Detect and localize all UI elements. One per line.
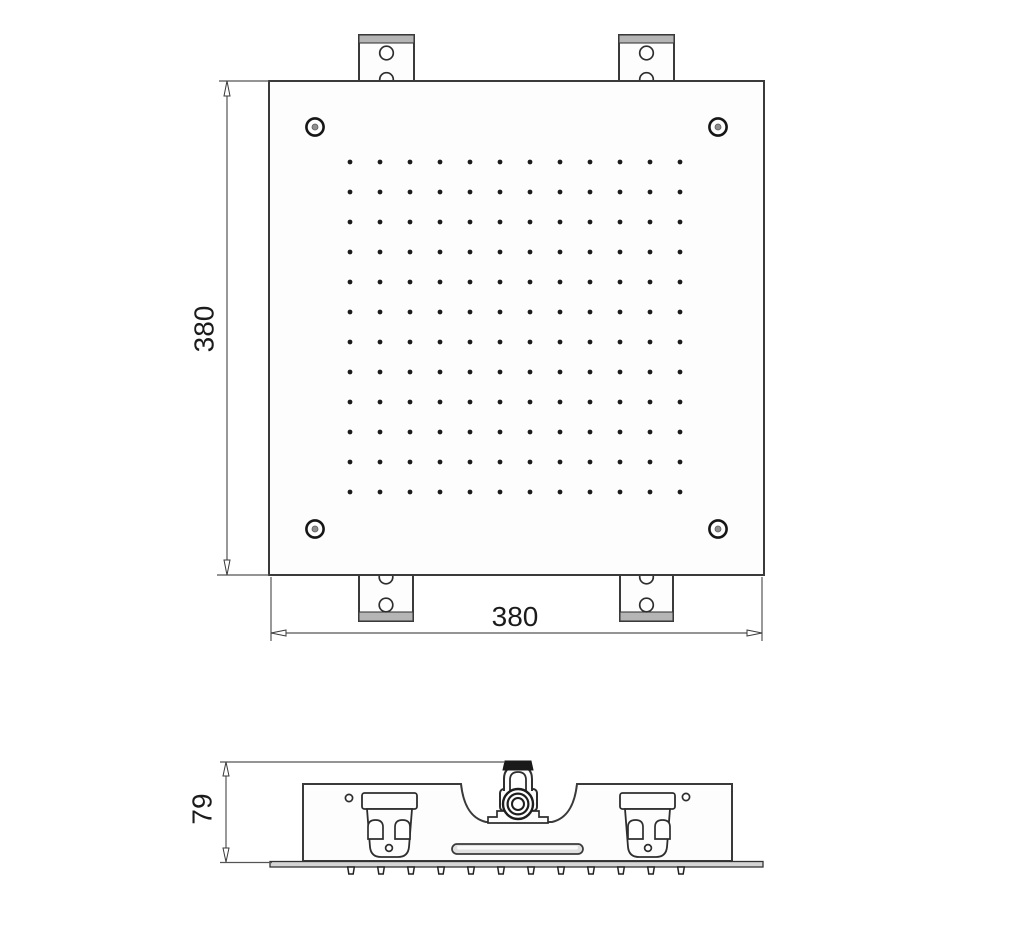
dimension-label-depth: 79 [186, 793, 217, 824]
nozzle-dot [438, 370, 443, 375]
nozzle-dot [498, 310, 503, 315]
nozzle-dot [438, 160, 443, 165]
bracket-gray-band [619, 35, 674, 43]
nozzle-dot [468, 280, 473, 285]
arrowhead-up [223, 762, 229, 776]
nozzle-dot [648, 190, 653, 195]
nozzle-dot [528, 160, 533, 165]
nozzle-dot [588, 310, 593, 315]
nozzle-dot [618, 400, 623, 405]
nozzle-dot [588, 370, 593, 375]
nozzle-dot [558, 400, 563, 405]
nozzle-dot [468, 250, 473, 255]
nozzle-dot [468, 430, 473, 435]
nozzle-dot [528, 430, 533, 435]
nozzle-dot [588, 250, 593, 255]
nozzle-dot [408, 430, 413, 435]
waterfall-slot [452, 844, 583, 854]
nozzle-dot [528, 310, 533, 315]
screw-hole [682, 793, 689, 800]
nozzle-dot [438, 280, 443, 285]
bracket-hole [640, 598, 654, 612]
bracket-hole [640, 46, 654, 60]
nozzle-dot [468, 400, 473, 405]
nozzle-dot [378, 400, 383, 405]
nozzle-dot [558, 430, 563, 435]
water-inlet-connector [488, 761, 548, 823]
nozzle-dot [528, 490, 533, 495]
bracket-gray-band [359, 35, 414, 43]
nozzle-dot [618, 190, 623, 195]
nozzle-dot [468, 190, 473, 195]
nozzle-dot [558, 190, 563, 195]
arrowhead-right [747, 630, 762, 636]
nozzle-dot [678, 490, 683, 495]
nozzle-dot [648, 460, 653, 465]
top-view [269, 35, 764, 621]
nozzle-dot [438, 220, 443, 225]
nozzle-dot [588, 430, 593, 435]
arrowhead-left [271, 630, 286, 636]
nozzle-dot [438, 310, 443, 315]
mounting-bracket-top-right [619, 35, 674, 86]
nozzle-dot [618, 220, 623, 225]
keyhole-slot [368, 820, 383, 839]
nozzle-dot [588, 190, 593, 195]
nozzle-dot [408, 220, 413, 225]
inlet-dark-cap [503, 761, 533, 770]
nozzle-dot [528, 400, 533, 405]
nozzle-dot [618, 340, 623, 345]
nozzle-dot [348, 340, 353, 345]
nozzle-dot [678, 220, 683, 225]
nozzle-dot [678, 400, 683, 405]
nozzle-dot [528, 370, 533, 375]
side-bracket-right [620, 793, 675, 857]
bracket-gray-band [359, 612, 413, 621]
nozzle-dot [588, 160, 593, 165]
nozzle-dot [468, 490, 473, 495]
nozzle-dot [648, 490, 653, 495]
nozzle-dot [408, 340, 413, 345]
nozzle-dot [378, 280, 383, 285]
bracket-gray-band [620, 612, 673, 621]
nozzle-dot [618, 160, 623, 165]
screw-hole [345, 794, 352, 801]
nozzle-dot [648, 220, 653, 225]
nozzle-tick [528, 867, 535, 874]
nozzle-dot [408, 160, 413, 165]
nozzle-dot [498, 370, 503, 375]
nozzle-dot [648, 370, 653, 375]
nozzle-dot [588, 400, 593, 405]
nozzle-dot [558, 220, 563, 225]
nozzle-dot [588, 220, 593, 225]
bracket-hole [379, 598, 393, 612]
nozzle-dot [348, 280, 353, 285]
nozzle-dot [558, 310, 563, 315]
nozzle-tick [498, 867, 505, 874]
nozzle-dot [558, 280, 563, 285]
dimension-width-380: 380 [271, 577, 762, 641]
nozzle-tick [378, 867, 385, 874]
nozzle-dot [528, 460, 533, 465]
nozzle-dot [408, 400, 413, 405]
nozzle-tick [678, 867, 685, 874]
nozzle-dot [468, 310, 473, 315]
nozzle-dot [348, 250, 353, 255]
nozzle-dot [438, 490, 443, 495]
nozzle-dot [378, 220, 383, 225]
nozzle-dot [558, 490, 563, 495]
side-bracket-left [362, 793, 417, 857]
dimension-height-380: 380 [188, 81, 269, 575]
nozzle-dot [468, 220, 473, 225]
nozzle-dot [588, 490, 593, 495]
dimension-label-width: 380 [492, 601, 539, 632]
nozzle-dot [678, 160, 683, 165]
arrowhead-down [224, 560, 230, 575]
nozzle-dot [348, 460, 353, 465]
arrowhead-down [223, 848, 229, 862]
nozzle-dot [648, 310, 653, 315]
nozzle-dot [588, 280, 593, 285]
nozzle-dot [498, 340, 503, 345]
nozzle-tick [468, 867, 475, 874]
nozzle-dot [558, 340, 563, 345]
nozzle-dot [438, 460, 443, 465]
nozzle-tick [408, 867, 415, 874]
nozzle-dot [588, 460, 593, 465]
nozzle-dot [618, 430, 623, 435]
nozzle-dot [348, 400, 353, 405]
drawing-canvas: 380 380 [0, 0, 1024, 936]
nozzle-dot [498, 160, 503, 165]
bracket-screw-hole [386, 845, 393, 852]
nozzle-dot [348, 430, 353, 435]
nozzle-tick [648, 867, 655, 874]
nozzle-dot [348, 370, 353, 375]
nozzle-dot [528, 280, 533, 285]
nozzle-dot [648, 340, 653, 345]
nozzle-dot [678, 310, 683, 315]
nozzle-dot [348, 190, 353, 195]
nozzle-dot [438, 430, 443, 435]
nozzle-dot [348, 220, 353, 225]
nozzle-dot [618, 280, 623, 285]
side-view [270, 761, 763, 874]
nozzle-dot [378, 310, 383, 315]
nozzle-dot [558, 250, 563, 255]
nozzle-dot [378, 460, 383, 465]
nozzle-dot [618, 310, 623, 315]
dimension-label-height: 380 [188, 306, 219, 353]
nozzle-dot [498, 490, 503, 495]
bracket-hole [380, 46, 394, 60]
nozzle-dot [378, 490, 383, 495]
nozzle-dot [348, 160, 353, 165]
showerhead-plate [269, 81, 764, 575]
mounting-bracket-bottom-left [359, 570, 413, 621]
corner-screw [709, 118, 726, 135]
nozzle-dot [648, 160, 653, 165]
nozzle-dot [678, 250, 683, 255]
nozzle-dot [648, 400, 653, 405]
nozzle-dot [378, 250, 383, 255]
nozzle-dot [528, 340, 533, 345]
faceplate-strip [270, 862, 763, 868]
nozzle-dot [618, 370, 623, 375]
nozzle-dot [588, 340, 593, 345]
nozzle-dot [468, 370, 473, 375]
nozzle-dot [558, 160, 563, 165]
keyhole-slot [395, 820, 410, 839]
nozzle-dot [348, 490, 353, 495]
nozzle-dot [498, 430, 503, 435]
mounting-bracket-bottom-right [620, 570, 673, 621]
nozzle-dot [498, 460, 503, 465]
nozzle-dot [678, 190, 683, 195]
nozzle-dot [438, 250, 443, 255]
nozzle-dot [498, 220, 503, 225]
nozzle-dot [648, 430, 653, 435]
nozzle-dot [678, 340, 683, 345]
nozzle-dot [408, 490, 413, 495]
nozzle-dot [408, 250, 413, 255]
nozzle-dot [438, 340, 443, 345]
bracket-cap [362, 793, 417, 809]
nozzle-dot [528, 250, 533, 255]
nozzle-dot [678, 460, 683, 465]
nozzle-dot [408, 370, 413, 375]
nozzle-dot [558, 370, 563, 375]
nozzle-dot [378, 190, 383, 195]
nozzle-dot [678, 280, 683, 285]
nozzle-dot [498, 400, 503, 405]
nozzle-dot [438, 400, 443, 405]
nozzle-tick-row [348, 867, 685, 874]
nozzle-dot [438, 190, 443, 195]
nozzle-dot [618, 460, 623, 465]
nozzle-dot [648, 280, 653, 285]
nozzle-dot [528, 190, 533, 195]
nozzle-dot [378, 370, 383, 375]
technical-drawing-page: 380 380 [0, 0, 1024, 936]
nozzle-dot [468, 460, 473, 465]
nozzle-dot [348, 310, 353, 315]
nozzle-dot [558, 460, 563, 465]
nozzle-dot [498, 190, 503, 195]
nozzle-dot [468, 340, 473, 345]
nozzle-dot [408, 460, 413, 465]
nozzle-dot [408, 280, 413, 285]
nozzle-dot [498, 280, 503, 285]
bracket-cap [620, 793, 675, 809]
nozzle-tick [438, 867, 445, 874]
nozzle-dot [618, 250, 623, 255]
nozzle-dot [408, 190, 413, 195]
nozzle-tick [348, 867, 355, 874]
corner-screw [306, 118, 323, 135]
nozzle-tick [618, 867, 625, 874]
nozzle-tick [558, 867, 565, 874]
nozzle-tick [588, 867, 595, 874]
nozzle-dot [378, 430, 383, 435]
nozzle-dot [498, 250, 503, 255]
corner-screw [306, 520, 323, 537]
nozzle-dot [378, 160, 383, 165]
keyhole-slot [628, 820, 643, 839]
corner-screw [709, 520, 726, 537]
nozzle-dot [378, 340, 383, 345]
nozzle-dot [408, 310, 413, 315]
nozzle-dot [678, 370, 683, 375]
nozzle-dot [678, 430, 683, 435]
keyhole-slot [655, 820, 670, 839]
nozzle-dot [648, 250, 653, 255]
arrowhead-up [224, 81, 230, 96]
inlet-nut-inner [512, 798, 524, 810]
mounting-bracket-top-left [359, 35, 414, 86]
bracket-screw-hole [645, 845, 652, 852]
nozzle-dot [468, 160, 473, 165]
nozzle-dot [618, 490, 623, 495]
nozzle-dot [528, 220, 533, 225]
